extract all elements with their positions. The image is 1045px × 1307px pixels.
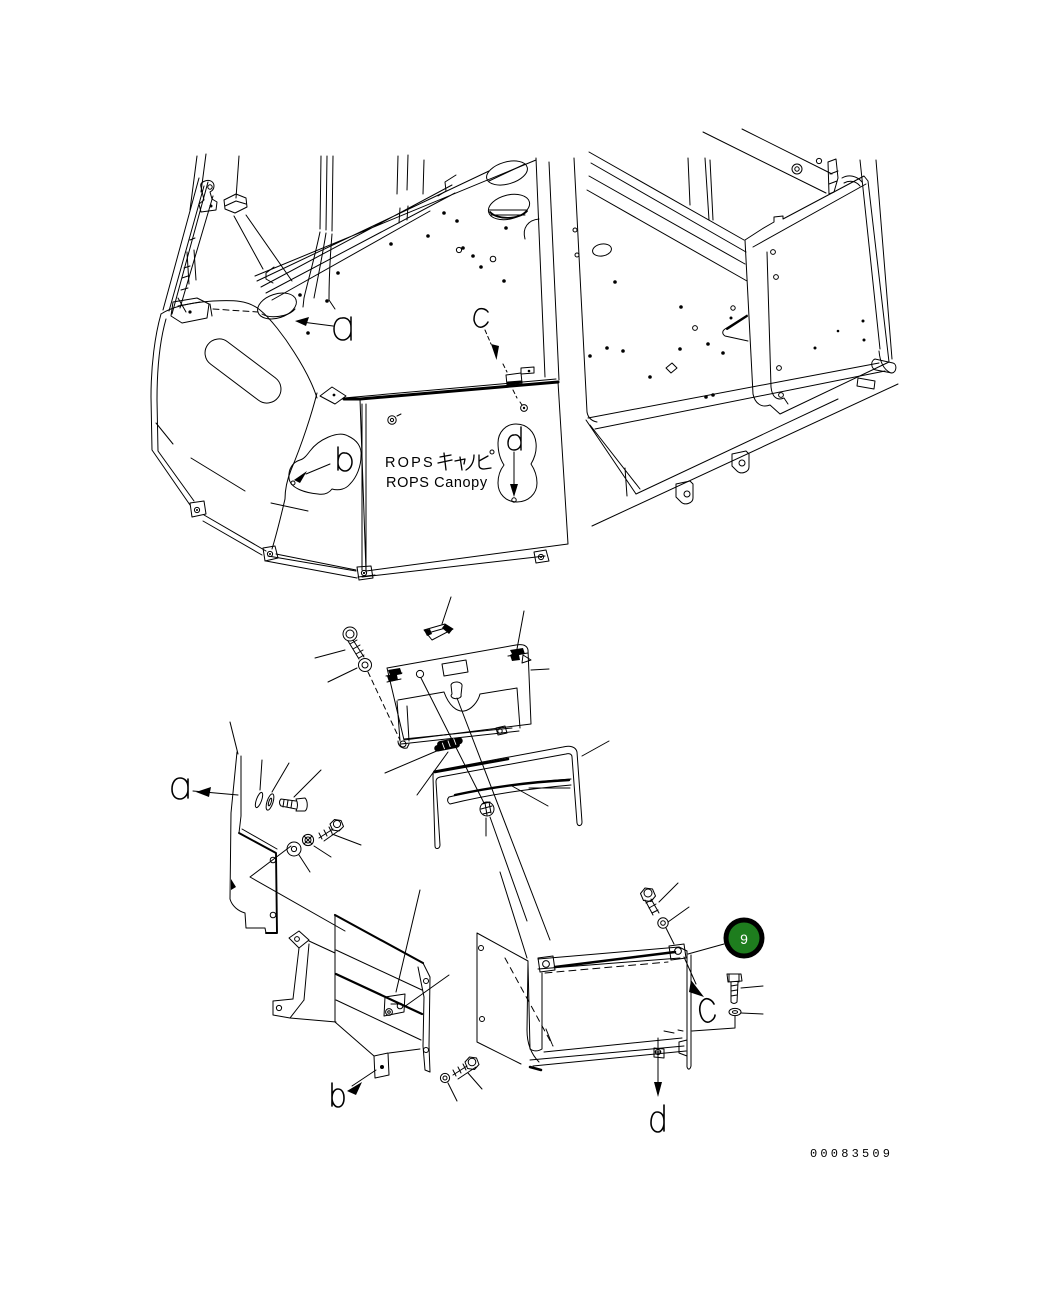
svg-text:ROPS: ROPS [385,455,435,471]
svg-text:00083509: 00083509 [810,1147,893,1161]
svg-text:9: 9 [740,931,748,947]
svg-text:ROPS Canopy: ROPS Canopy [386,475,488,491]
